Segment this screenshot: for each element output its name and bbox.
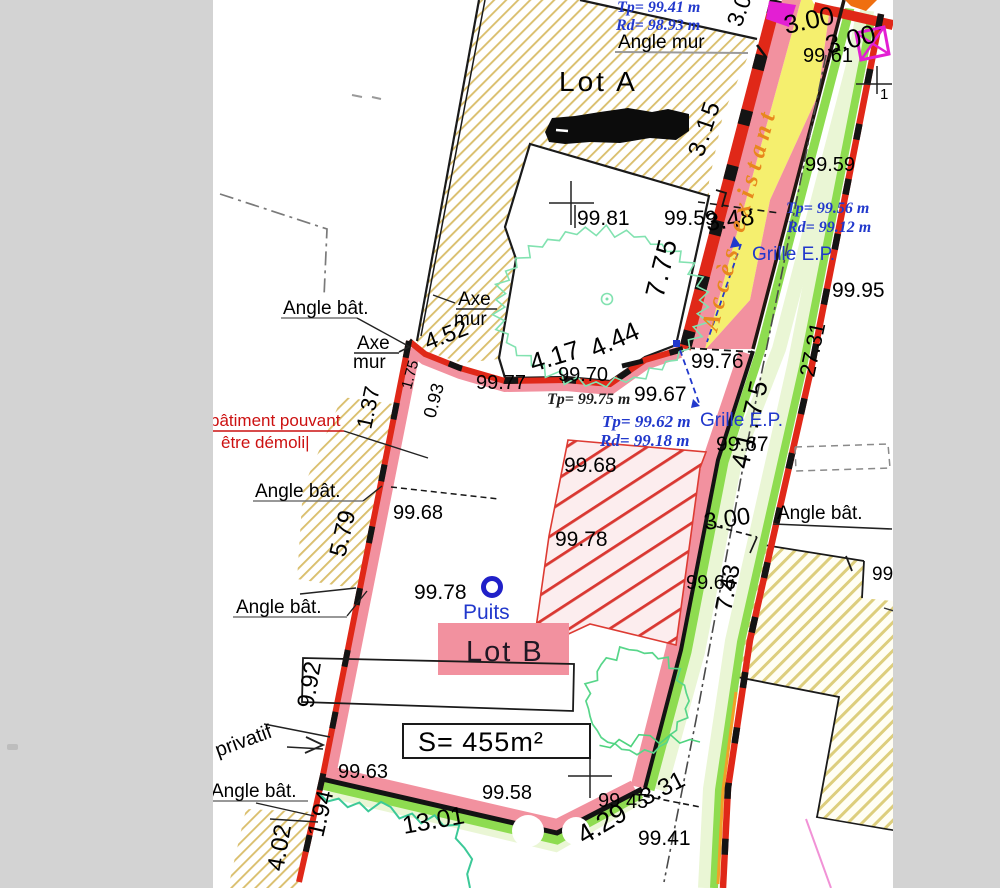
- svg-text:99.41: 99.41: [638, 827, 691, 850]
- svg-text:Puits: Puits: [463, 601, 510, 624]
- svg-text:privatif: privatif: [212, 721, 275, 762]
- svg-text:99.67: 99.67: [634, 383, 687, 406]
- svg-text:99.68: 99.68: [564, 454, 617, 477]
- svg-text:Lot B: Lot B: [466, 636, 544, 668]
- svg-text:1.94: 1.94: [303, 788, 340, 840]
- svg-text:99.58: 99.58: [482, 782, 532, 804]
- svg-text:99: 99: [598, 790, 620, 812]
- svg-text:3.00: 3.00: [702, 503, 752, 536]
- svg-text:mur: mur: [353, 352, 386, 373]
- svg-text:99.95: 99.95: [832, 279, 885, 302]
- svg-text:99.77: 99.77: [476, 372, 526, 394]
- svg-text:Angle bât.: Angle bât.: [211, 781, 297, 802]
- svg-text:S= 455m²: S= 455m²: [418, 727, 544, 757]
- svg-text:Angle bât.: Angle bât.: [255, 481, 341, 502]
- svg-text:Tp= 99.41 m: Tp= 99.41 m: [617, 0, 700, 16]
- svg-text:99.59: 99.59: [805, 154, 855, 176]
- svg-text:bâtiment pouvant: bâtiment pouvant: [210, 411, 341, 430]
- svg-text:1: 1: [880, 86, 888, 103]
- svg-text:99.78: 99.78: [555, 528, 608, 551]
- svg-text:99.59: 99.59: [664, 207, 717, 230]
- svg-text:Angle bât.: Angle bât.: [283, 298, 369, 319]
- svg-text:Lot A: Lot A: [559, 66, 638, 97]
- svg-text:45: 45: [626, 791, 648, 813]
- svg-text:99.66: 99.66: [686, 572, 736, 594]
- svg-text:99: 99: [872, 564, 893, 585]
- svg-text:Angle bât.: Angle bât.: [236, 597, 322, 618]
- svg-text:Rd= 99.12 m: Rd= 99.12 m: [786, 219, 871, 236]
- svg-text:Axe: Axe: [357, 333, 390, 354]
- svg-text:99.81: 99.81: [577, 207, 630, 230]
- svg-text:Tp= 99.62 m: Tp= 99.62 m: [602, 412, 691, 431]
- svg-text:Tp= 99.56 m: Tp= 99.56 m: [786, 200, 869, 217]
- svg-text:99.61: 99.61: [803, 45, 853, 67]
- svg-text:99.78: 99.78: [414, 581, 467, 604]
- svg-text:Grille E.P.: Grille E.P.: [752, 244, 835, 265]
- svg-text:Angle bât.: Angle bât.: [777, 503, 863, 524]
- svg-text:Axe: Axe: [458, 289, 491, 310]
- svg-text:Tp= 99.75 m: Tp= 99.75 m: [547, 391, 630, 408]
- svg-text:3.0: 3.0: [721, 0, 756, 30]
- svg-text:Angle mur: Angle mur: [618, 32, 705, 53]
- svg-text:99.76: 99.76: [691, 350, 744, 373]
- svg-text:0.93: 0.93: [420, 381, 448, 420]
- svg-text:Rd= 99.18 m: Rd= 99.18 m: [599, 431, 690, 450]
- svg-text:99.63: 99.63: [338, 761, 388, 783]
- svg-text:être démoli|: être démoli|: [221, 433, 310, 452]
- svg-text:99.68: 99.68: [393, 502, 443, 524]
